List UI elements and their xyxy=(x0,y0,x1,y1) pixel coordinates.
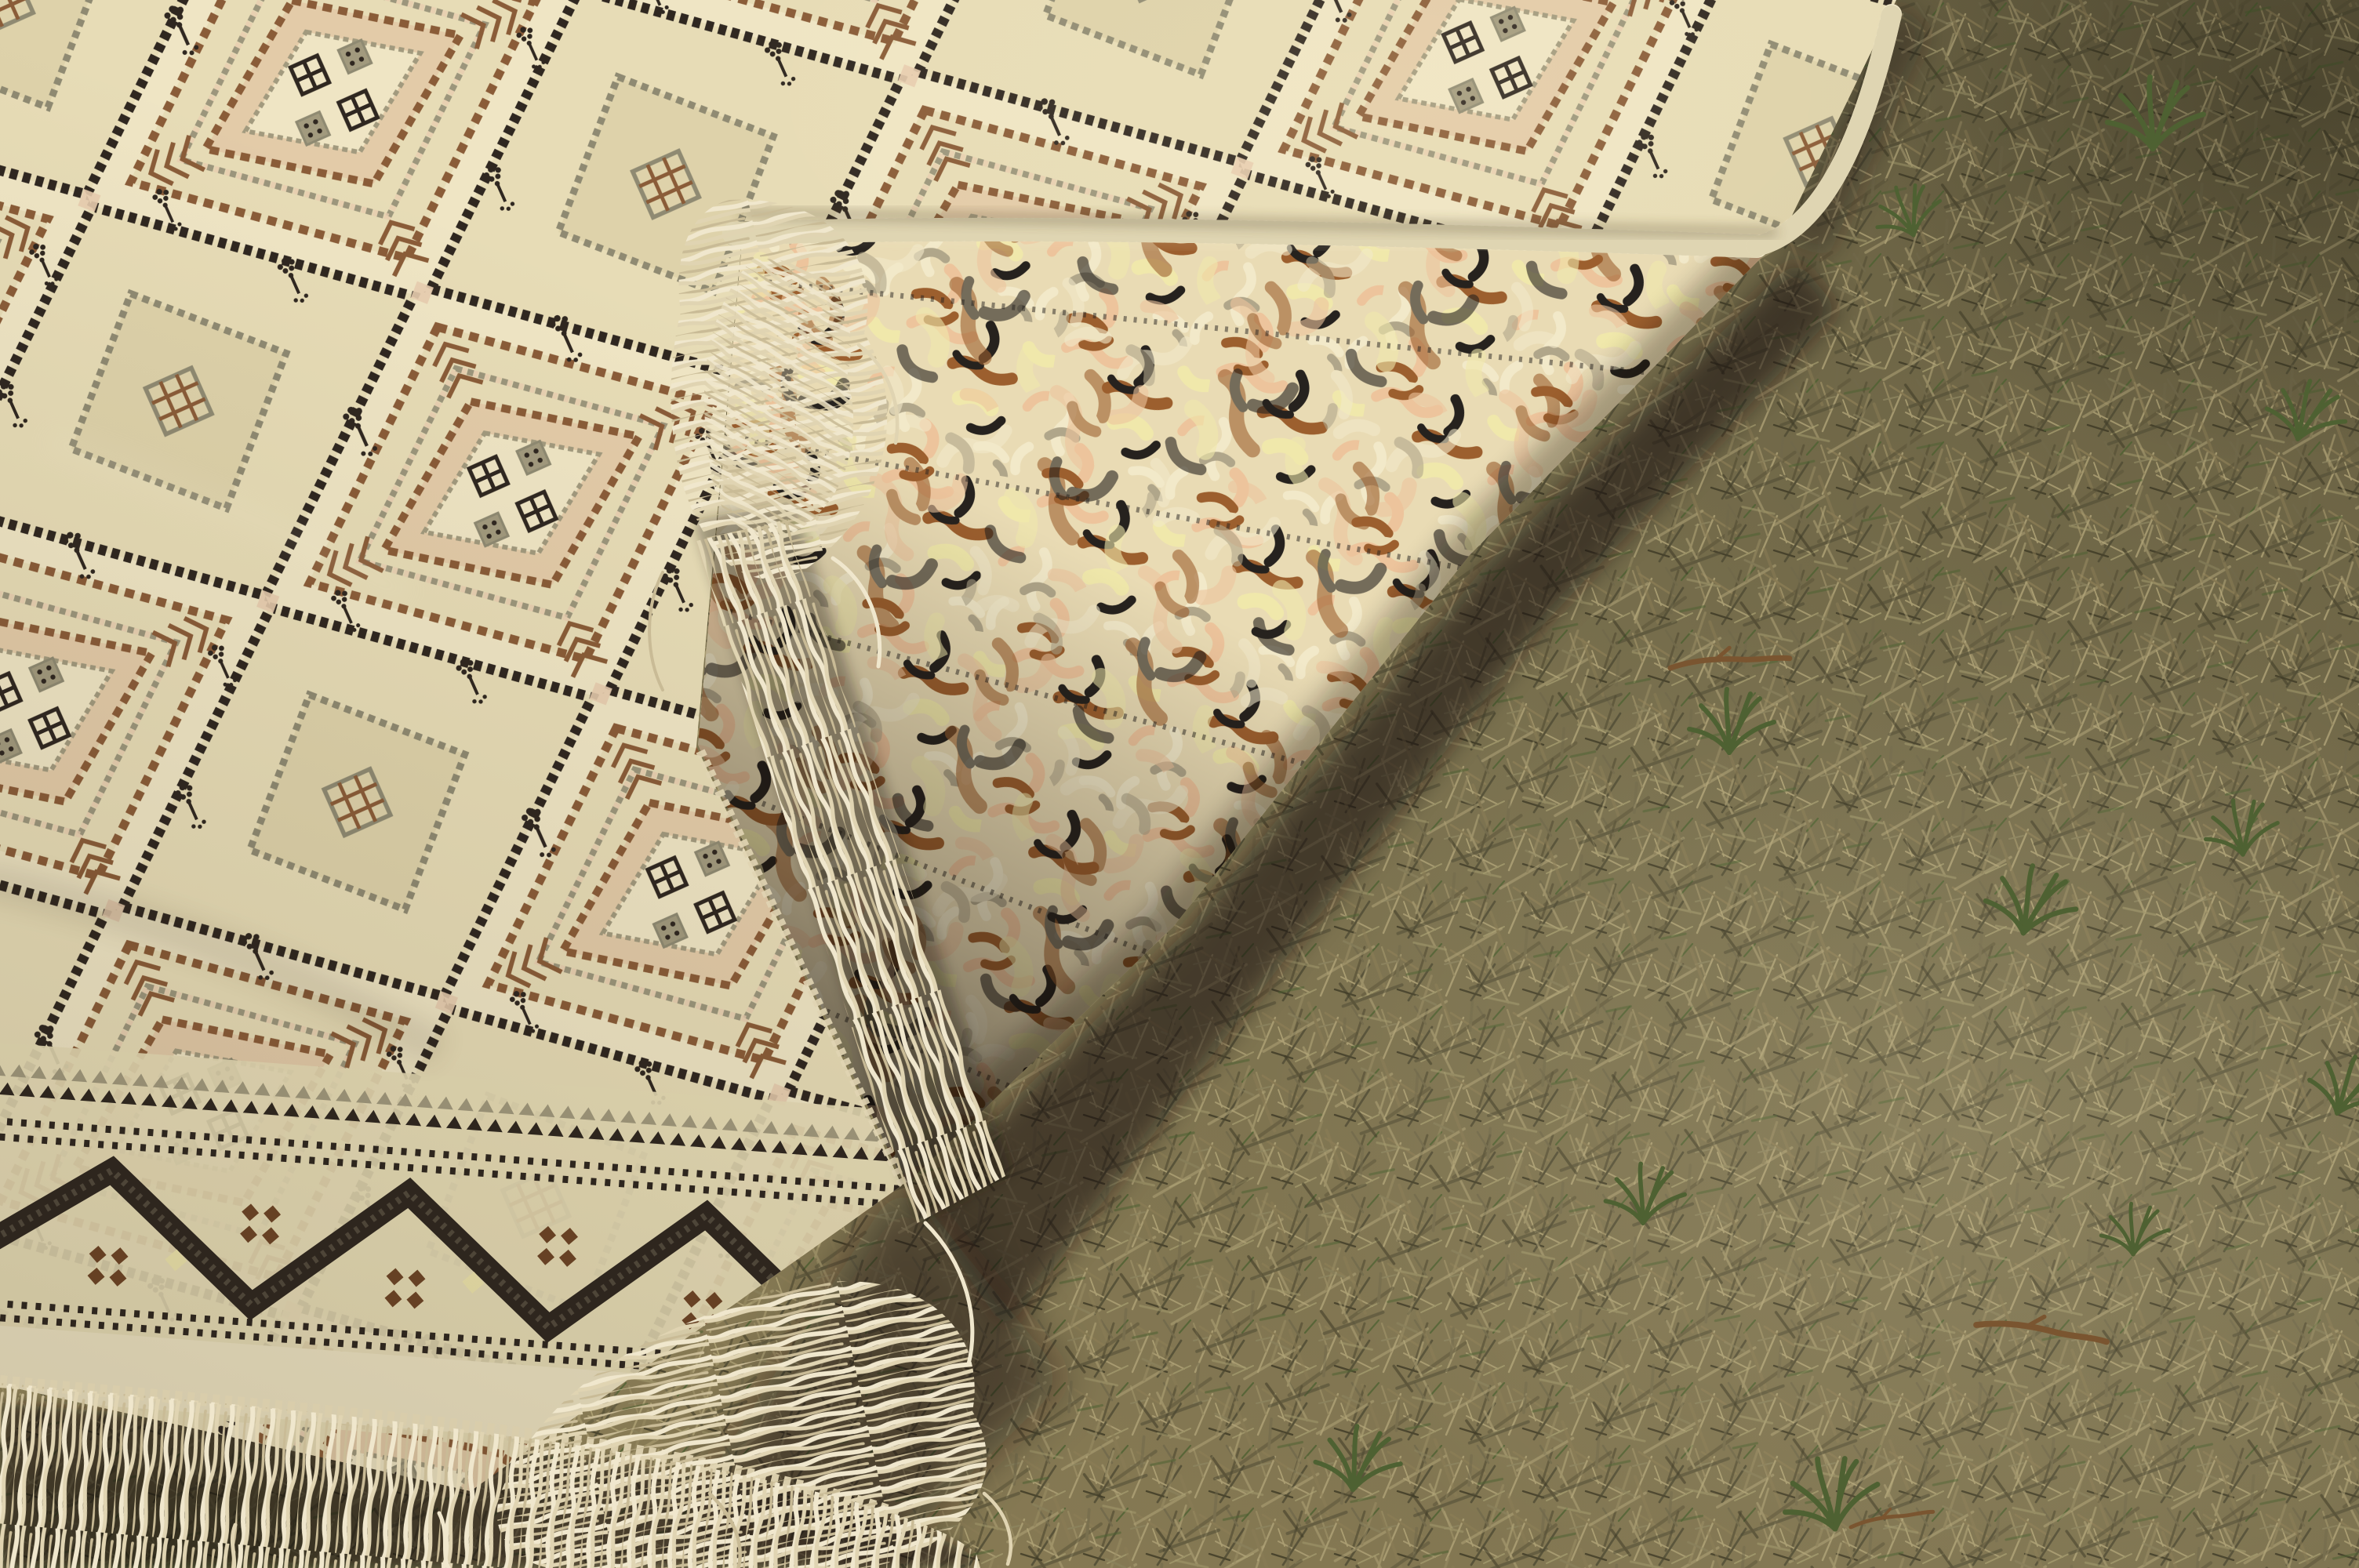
photo-canvas xyxy=(0,0,2359,1568)
photo: A cream handwoven Berber kilim rug with … xyxy=(0,0,2359,1568)
